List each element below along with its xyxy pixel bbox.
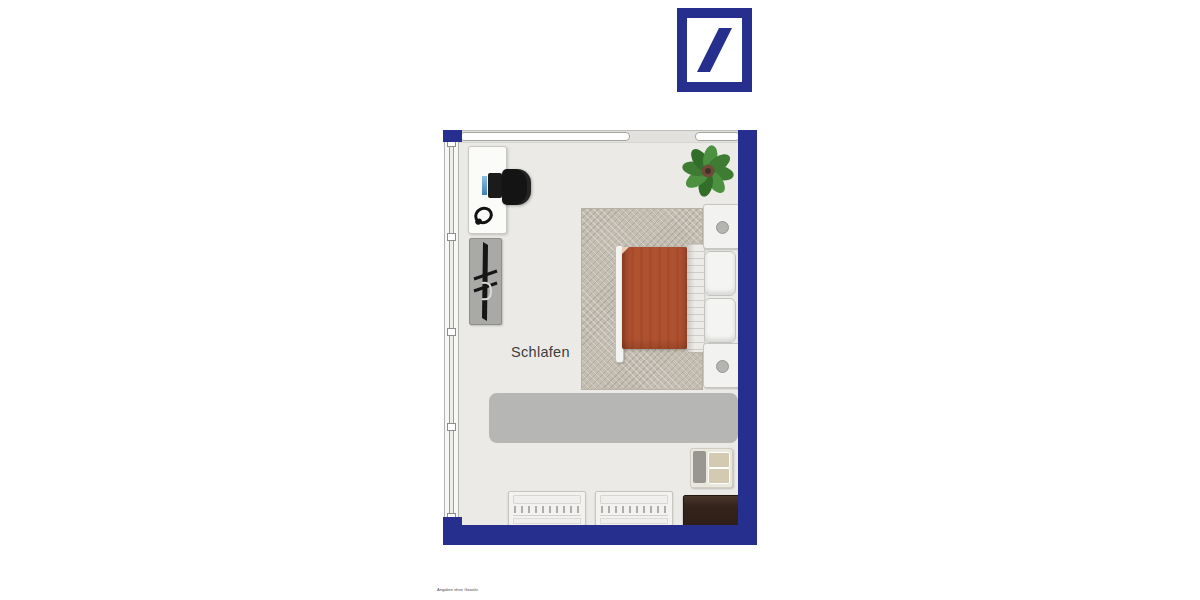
window-mullion <box>447 328 456 336</box>
nightstand-knob <box>716 221 729 234</box>
armchair-cushion <box>708 468 730 484</box>
armchair <box>690 448 733 488</box>
drying-rack-mat <box>469 238 502 325</box>
window-top-long <box>460 132 630 141</box>
bed-white-duvet <box>687 244 704 352</box>
wall-top <box>455 130 738 143</box>
wall-corner-bottom-left <box>443 517 462 545</box>
bed-pillows <box>704 251 736 343</box>
room-label: Schlafen <box>511 344 570 360</box>
nightstand-knob <box>716 360 729 373</box>
slash-in-square-logo-icon <box>687 18 742 82</box>
pillow <box>704 298 736 343</box>
wall-bottom <box>443 525 757 545</box>
computer-monitor <box>488 173 502 198</box>
window-left <box>444 140 459 522</box>
chest-of-drawers-right <box>595 491 673 526</box>
gray-rug <box>489 393 738 443</box>
brand-logo <box>677 8 752 92</box>
floorplan: Schlafen <box>443 130 757 545</box>
page: Schlafen Angaben ohne Gewähr <box>0 0 1200 600</box>
pillow <box>704 251 736 296</box>
potted-plant <box>680 143 736 199</box>
footer-disclaimer: Angaben ohne Gewähr <box>437 587 478 592</box>
window-mullion <box>447 233 456 241</box>
nightstand-bottom <box>703 343 740 388</box>
wall-right <box>738 130 757 545</box>
drawer <box>513 495 581 504</box>
window-top-short <box>695 132 740 141</box>
drawer-divider <box>513 515 581 516</box>
drawer-divider <box>600 515 668 516</box>
armchair-backrest <box>693 451 706 483</box>
window-mullion <box>447 423 456 431</box>
drawer-handles <box>601 506 667 513</box>
drawer <box>513 518 581 524</box>
chest-of-drawers-left <box>508 491 586 526</box>
monitor-screen <box>482 176 487 195</box>
office-chair <box>502 169 531 205</box>
plant-icon <box>680 143 736 199</box>
nightstand-top <box>703 204 740 249</box>
dark-sideboard <box>683 495 740 527</box>
drawer <box>600 518 668 524</box>
drawer <box>600 495 668 504</box>
bed-orange-blanket <box>622 247 687 349</box>
drying-rack <box>470 239 501 324</box>
drawer-handles <box>514 506 580 513</box>
wall-corner-top-left <box>443 130 462 142</box>
armchair-cushion <box>708 452 730 468</box>
